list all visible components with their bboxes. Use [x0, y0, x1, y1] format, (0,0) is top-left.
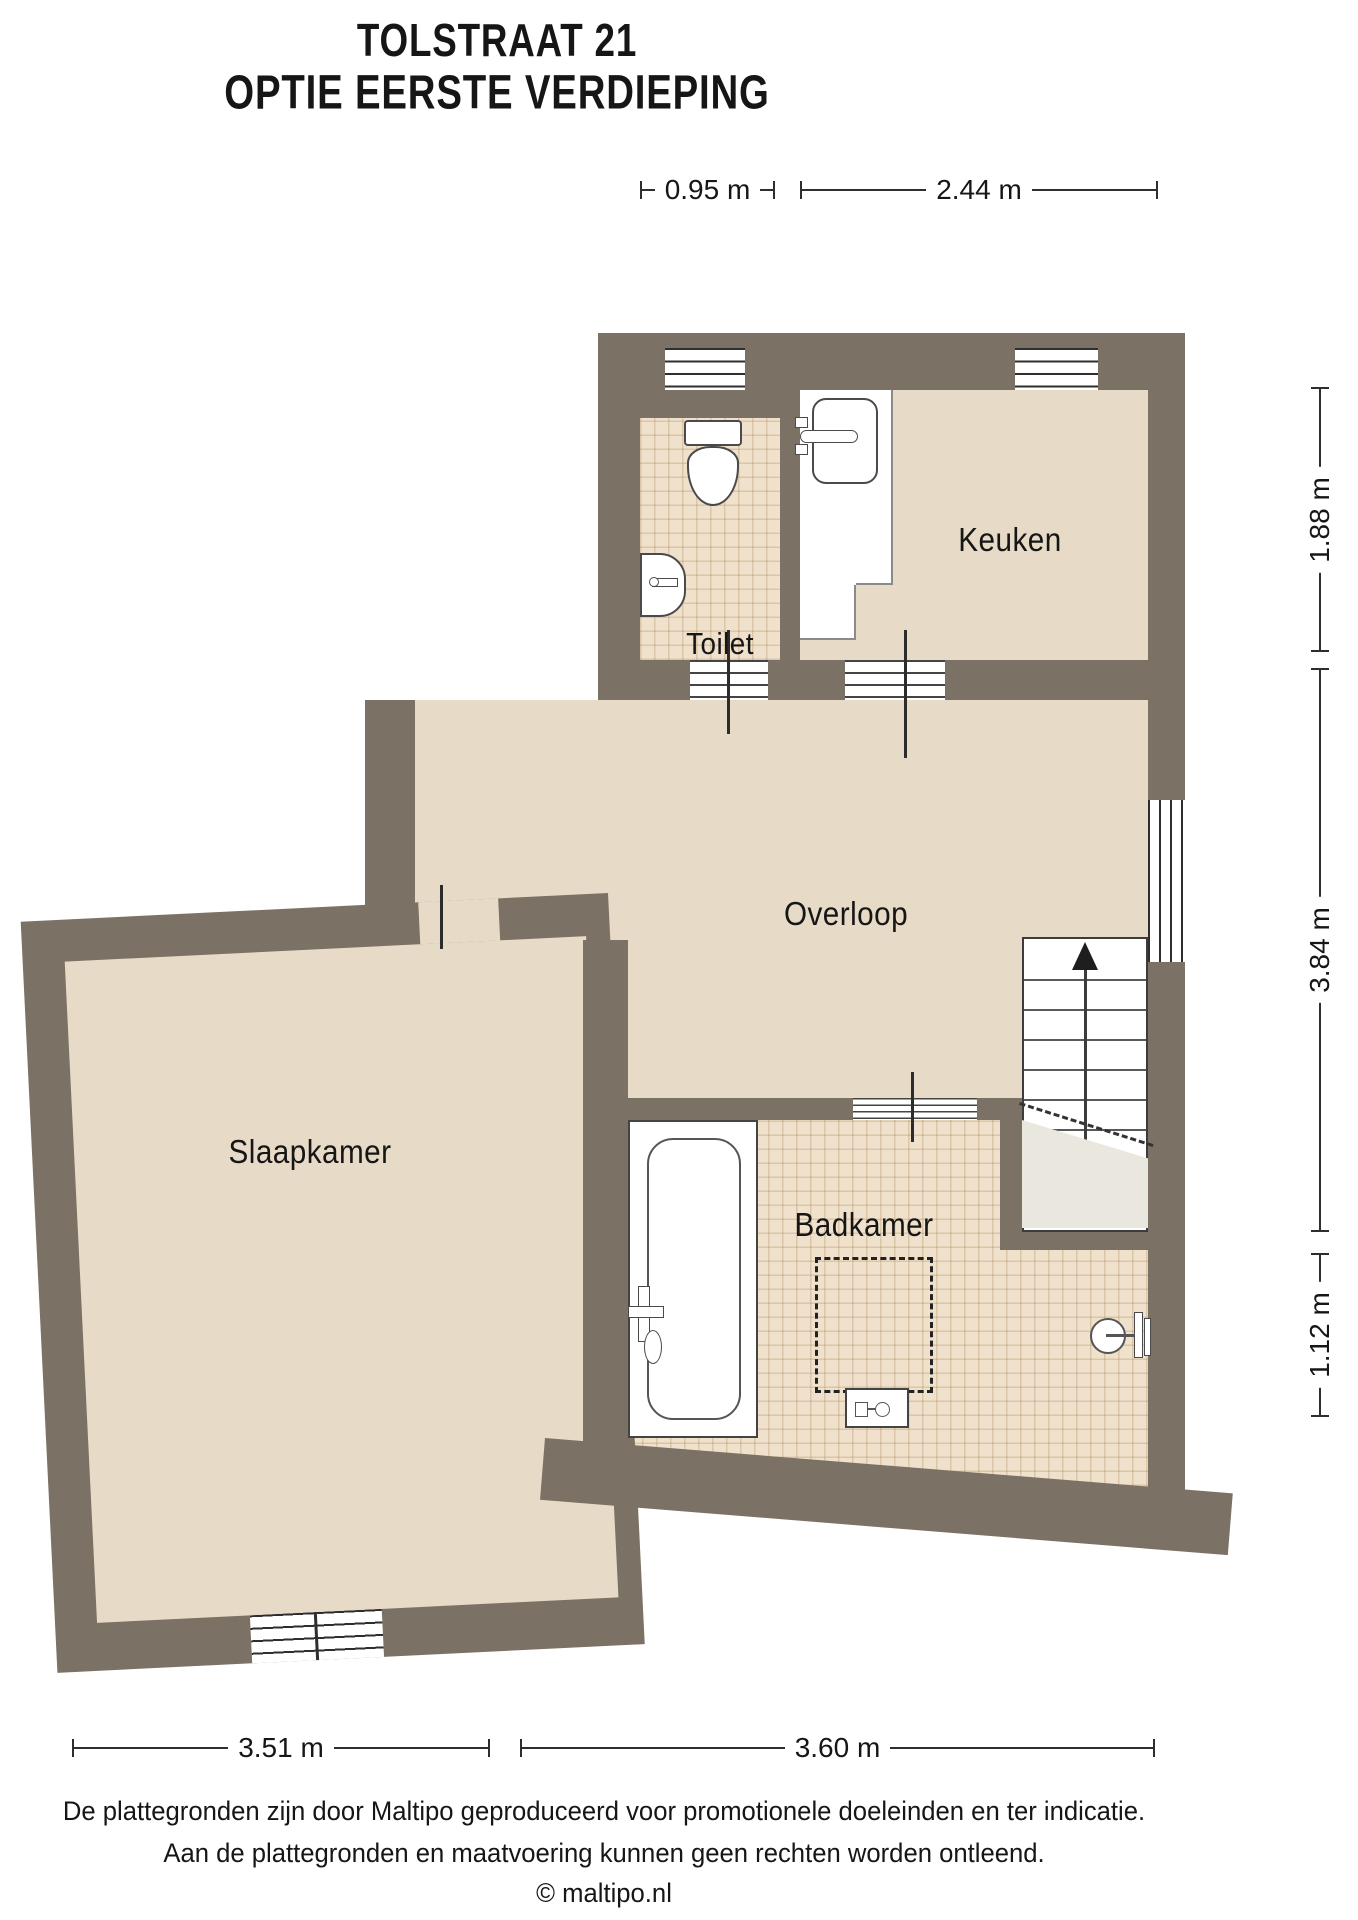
wall-landing-top-c — [945, 660, 1148, 700]
page-subtitle: OPTIE EERSTE VERDIEPING — [224, 66, 769, 121]
footer-disclaimer-1: De plattegronden zijn door Maltipo gepro… — [63, 1796, 1145, 1827]
washbasin-tap-line — [1106, 1334, 1136, 1337]
page-title: TOLSTRAAT 21 — [357, 13, 637, 67]
bathtub-inner — [647, 1138, 741, 1420]
wall-landing-left — [365, 700, 415, 905]
room-label-bedroom: Slaapkamer — [229, 1133, 392, 1171]
kitchen-top-window — [1015, 348, 1098, 390]
room-label-kitchen: Keuken — [958, 521, 1061, 559]
dimension-top-left-label: 0.95 m — [655, 174, 761, 206]
bathtub-tap-knob — [644, 1330, 662, 1364]
toilet-top-window — [665, 348, 745, 390]
stairs-arrow-stem — [1084, 970, 1087, 1155]
bedroom-floor — [65, 936, 619, 1623]
kitchen-tap-knob-1 — [795, 417, 808, 428]
dimension-bottom-left-label: 3.51 m — [228, 1732, 334, 1764]
footer-disclaimer-2: Aan de plattegronden en maatvoering kunn… — [163, 1838, 1044, 1869]
bedroom-wing — [21, 893, 645, 1673]
kitchen-door-opening — [845, 660, 945, 700]
dimension-right-middle: 3.84 m — [1301, 668, 1339, 1232]
bedroom-door-opening — [418, 898, 500, 944]
kitchen-counter-step — [856, 583, 893, 585]
dimension-right-bottom: 1.12 m — [1301, 1253, 1339, 1417]
dimension-right-bottom-label: 1.12 m — [1304, 1282, 1336, 1388]
dimension-bottom-right: 3.60 m — [520, 1729, 1155, 1767]
bedroom-door-tick — [440, 885, 443, 949]
kitchen-door-tick — [904, 630, 907, 758]
bedroom-window — [250, 1609, 384, 1663]
bathtub-tap-bar — [628, 1306, 664, 1318]
wall-landing-top-a — [598, 660, 690, 700]
washbasin-tap-2 — [1144, 1318, 1151, 1356]
bathroom-door-opening — [853, 1098, 977, 1120]
dimension-top-right: 2.44 m — [800, 171, 1158, 209]
dimension-top-right-label: 2.44 m — [926, 174, 1032, 206]
toilet-tank — [684, 420, 742, 446]
dimension-right-top: 1.88 m — [1301, 387, 1339, 652]
window-mullion — [314, 1612, 319, 1660]
dimension-bottom-right-label: 3.60 m — [785, 1732, 891, 1764]
dimension-bottom-left: 3.51 m — [72, 1729, 490, 1767]
room-label-bathroom: Badkamer — [795, 1206, 934, 1244]
wall-toilet-top — [640, 390, 780, 418]
dimension-right-middle-label: 3.84 m — [1304, 897, 1336, 1003]
stairs-up-arrow-icon — [1072, 942, 1098, 970]
bathroom-sink-drain — [875, 1402, 890, 1417]
shower-area — [815, 1257, 933, 1393]
bathroom-sink-line — [867, 1408, 876, 1410]
wall-bathroom-top-a — [628, 1098, 853, 1120]
toilet-sink-knob — [649, 577, 659, 587]
wall-closet-left — [1000, 1098, 1022, 1250]
dimension-top-left: 0.95 m — [640, 171, 775, 209]
room-label-toilet: Toilet — [686, 626, 754, 662]
bathroom-sink-fixture — [845, 1388, 909, 1428]
wall-bathroom-left — [583, 940, 628, 1480]
wall-landing-top-b — [768, 660, 845, 700]
bathroom-door-tick — [911, 1072, 914, 1142]
landing-right-window — [1148, 800, 1185, 962]
wall-left-upper — [598, 333, 640, 700]
footer-copyright: © maltipo.nl — [536, 1878, 672, 1909]
room-label-landing: Overloop — [784, 895, 908, 933]
floorplan-page: TOLSTRAAT 21 OPTIE EERSTE VERDIEPING — [0, 0, 1358, 1920]
washbasin-tap-1 — [1134, 1312, 1143, 1358]
wall-toilet-kitchen — [780, 390, 800, 660]
kitchen-counter-b — [800, 585, 856, 640]
kitchen-tap-knob-2 — [795, 444, 808, 455]
dimension-right-top-label: 1.88 m — [1304, 467, 1336, 573]
kitchen-tap-spout — [800, 430, 858, 443]
